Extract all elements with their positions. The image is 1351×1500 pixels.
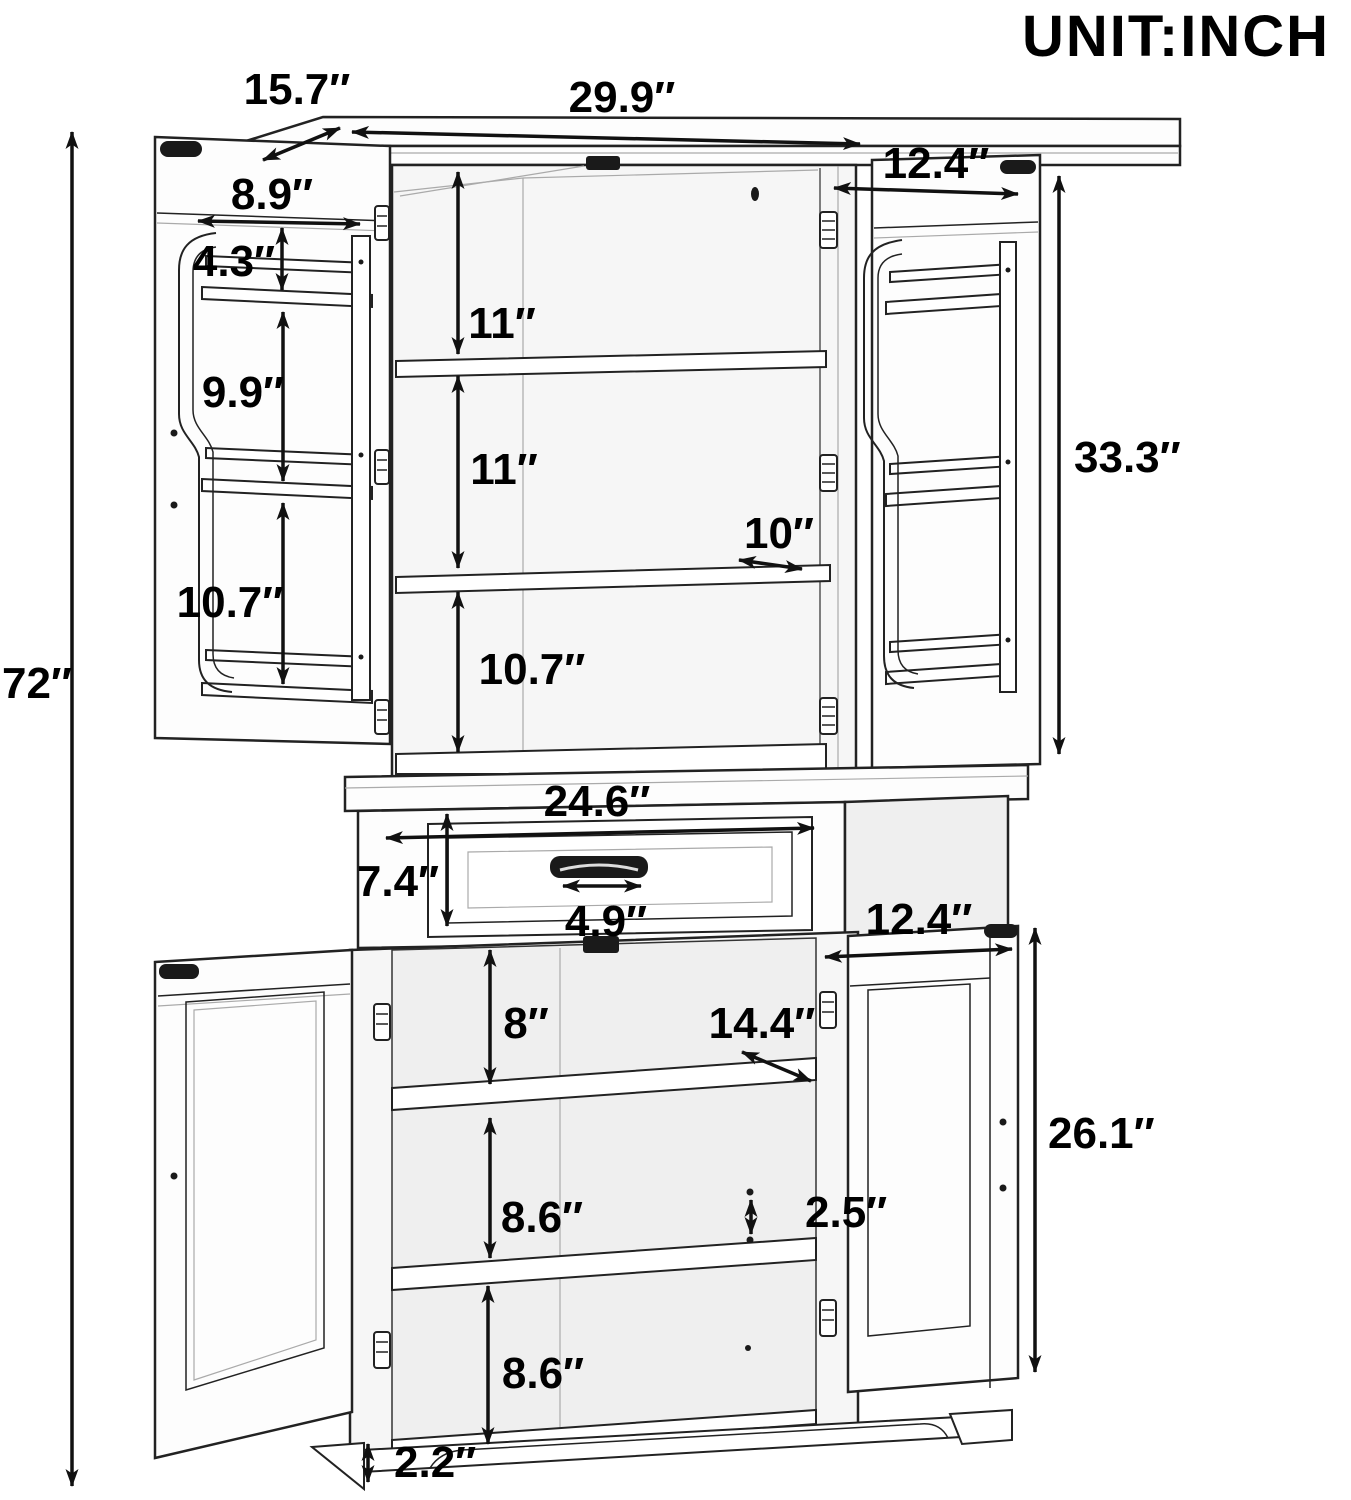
dim-label-base-height: 2.2″ — [394, 1438, 476, 1487]
hinge-icon — [374, 1004, 390, 1040]
dim-label-upper-door-width: 12.4″ — [883, 139, 990, 188]
dim-label-overall-height: 72″ — [2, 659, 72, 708]
hinge-icon — [820, 992, 836, 1028]
dim-label-upper-section-2: 11″ — [470, 445, 538, 494]
hinge-icon — [820, 1300, 836, 1336]
hinge-icon — [374, 1332, 390, 1368]
dim-rack-gap-top: 4.3″ — [193, 228, 282, 290]
dim-label-rack-width: 8.9″ — [231, 170, 313, 219]
dim-label-upper-door-height: 33.3″ — [1074, 433, 1181, 482]
dim-overall-height: 72″ — [2, 132, 72, 1486]
unit-label: UNIT:INCH — [1022, 4, 1330, 69]
magnet-catch-icon — [159, 964, 199, 979]
hinge-icon — [375, 700, 389, 734]
upper-right-door — [864, 155, 1040, 768]
magnet-catch-icon — [984, 924, 1018, 938]
dim-label-top-depth: 15.7″ — [244, 65, 351, 114]
dim-label-lower-section-1: 8″ — [503, 999, 549, 1048]
magnet-catch-icon — [1000, 160, 1036, 174]
dim-label-lower-section-2: 8.6″ — [501, 1193, 583, 1242]
shelf-pin-hole — [747, 1237, 754, 1244]
lower-left-door — [155, 950, 352, 1458]
shelf-pin-hole — [747, 1189, 754, 1196]
shelf-pin-hole — [745, 1345, 751, 1351]
dim-label-upper-section-3: 10.7″ — [479, 645, 586, 694]
dim-label-top-width: 29.9″ — [569, 73, 676, 122]
hinge-icon — [820, 455, 837, 491]
hinge-icon — [820, 698, 837, 734]
dim-label-lower-door-height: 26.1″ — [1048, 1109, 1155, 1158]
dim-label-shelf-depth: 10″ — [744, 509, 814, 558]
top-latch-icon — [586, 156, 620, 170]
drawer-handle — [550, 856, 648, 878]
hinge-icon — [375, 450, 389, 484]
door-rack-side — [1000, 242, 1016, 692]
bracket-foot — [950, 1410, 1012, 1444]
keyhole-icon — [751, 187, 759, 201]
dim-label-lower-shelf-depth: 14.4″ — [709, 999, 816, 1048]
dim-label-rack-gap-middle: 9.9″ — [202, 368, 284, 417]
bracket-foot — [312, 1443, 364, 1489]
dim-label-drawer-width: 24.6″ — [544, 777, 651, 826]
cabinet-dimension-diagram: 72″ 15.7″ 29.9″ 12.4″ 33.3″ 8.9″ 4.3″ — [0, 0, 1351, 1500]
upper-cabinet — [392, 156, 856, 777]
hinge-icon — [820, 212, 837, 248]
dim-label-rack-gap-bottom: 10.7″ — [177, 578, 284, 627]
hinge-icon — [375, 206, 389, 240]
dim-label-handle-width: 4.9″ — [565, 897, 647, 946]
dim-label-lower-door-width: 12.4″ — [866, 895, 973, 944]
dimension-diagram-page: 72″ 15.7″ 29.9″ 12.4″ 33.3″ 8.9″ 4.3″ — [0, 0, 1351, 1500]
magnet-catch-icon — [160, 141, 202, 157]
door-rack-side — [352, 236, 370, 700]
dim-label-lower-section-3: 8.6″ — [502, 1349, 584, 1398]
dim-label-drawer-height: 7.4″ — [357, 857, 439, 906]
dim-lower-door-height: 26.1″ — [1035, 928, 1155, 1372]
dim-label-upper-section-1: 11″ — [468, 299, 536, 348]
lower-right-door — [848, 924, 1018, 1392]
upper-left-door — [155, 137, 390, 744]
dim-upper-door-height: 33.3″ — [1059, 176, 1181, 754]
dim-label-shelf-hole-gap: 2.5″ — [805, 1188, 887, 1237]
dim-label-rack-gap-top: 4.3″ — [193, 237, 275, 286]
